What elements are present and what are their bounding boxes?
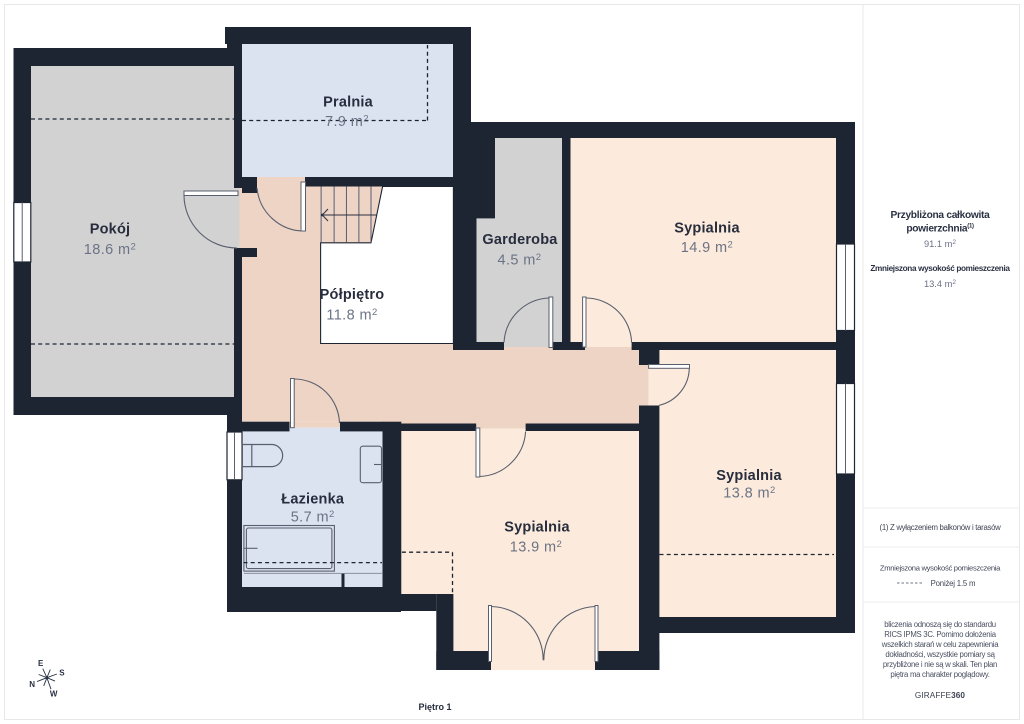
svg-text:18.6 m2: 18.6 m2 [84, 242, 136, 259]
svg-text:11.8 m2: 11.8 m2 [326, 307, 377, 324]
svg-text:GIRAFFE360: GIRAFFE360 [915, 691, 965, 700]
svg-text:Piętro 1: Piętro 1 [418, 702, 451, 712]
svg-text:Pokój: Pokój [90, 222, 130, 238]
svg-text:dokładności, wszystkie pomiary: dokładności, wszystkie pomiary są [885, 650, 995, 659]
svg-text:14.9 m2: 14.9 m2 [681, 240, 733, 257]
svg-text:S: S [59, 669, 65, 678]
svg-text:Zmniejszona wysokość pomieszcz: Zmniejszona wysokość pomieszczenia [880, 564, 1001, 573]
svg-text:RICS IPMS 3C. Pomimo dołożenia: RICS IPMS 3C. Pomimo dołożenia [884, 630, 996, 639]
svg-text:Sypialnia: Sypialnia [716, 468, 782, 484]
svg-text:piętra ma charakter poglądowy.: piętra ma charakter poglądowy. [890, 670, 989, 679]
svg-text:7.9 m2: 7.9 m2 [325, 114, 369, 131]
svg-text:13.4 m2: 13.4 m2 [924, 279, 956, 289]
svg-text:Garderoba: Garderoba [482, 232, 558, 248]
svg-text:powierzchnia(1): powierzchnia(1) [906, 224, 974, 235]
svg-text:5.7 m2: 5.7 m2 [291, 509, 335, 526]
svg-text:N: N [29, 680, 35, 689]
svg-text:Łazienka: Łazienka [281, 492, 345, 508]
svg-text:Sypialnia: Sypialnia [504, 520, 570, 536]
svg-text:91.1 m2: 91.1 m2 [924, 239, 956, 249]
svg-text:13.9 m2: 13.9 m2 [510, 539, 562, 556]
svg-text:Pralnia: Pralnia [323, 95, 373, 111]
svg-text:Zmniejszona wysokość pomieszcz: Zmniejszona wysokość pomieszczenia [870, 264, 1010, 273]
svg-text:bliczenia odnoszą się do stand: bliczenia odnoszą się do standardu [884, 620, 996, 629]
svg-text:Poniżej 1.5 m: Poniżej 1.5 m [931, 579, 976, 588]
svg-text:13.8 m2: 13.8 m2 [723, 485, 775, 502]
svg-text:W: W [50, 689, 58, 698]
svg-text:Sypialnia: Sypialnia [674, 221, 740, 237]
svg-text:przybliżone i nie są w skali.: przybliżone i nie są w skali. Ten plan [883, 660, 997, 669]
svg-text:wszelkich starań w celu zapewn: wszelkich starań w celu zapewnienia [881, 640, 999, 649]
svg-text:4.5 m2: 4.5 m2 [498, 252, 542, 269]
svg-text:Przybliżona całkowita: Przybliżona całkowita [890, 210, 990, 221]
svg-text:E: E [38, 659, 44, 668]
svg-text:Półpiętro: Półpiętro [320, 287, 385, 303]
svg-text:(1) Z wyłączeniem balkonów i t: (1) Z wyłączeniem balkonów i tarasów [880, 523, 1002, 532]
